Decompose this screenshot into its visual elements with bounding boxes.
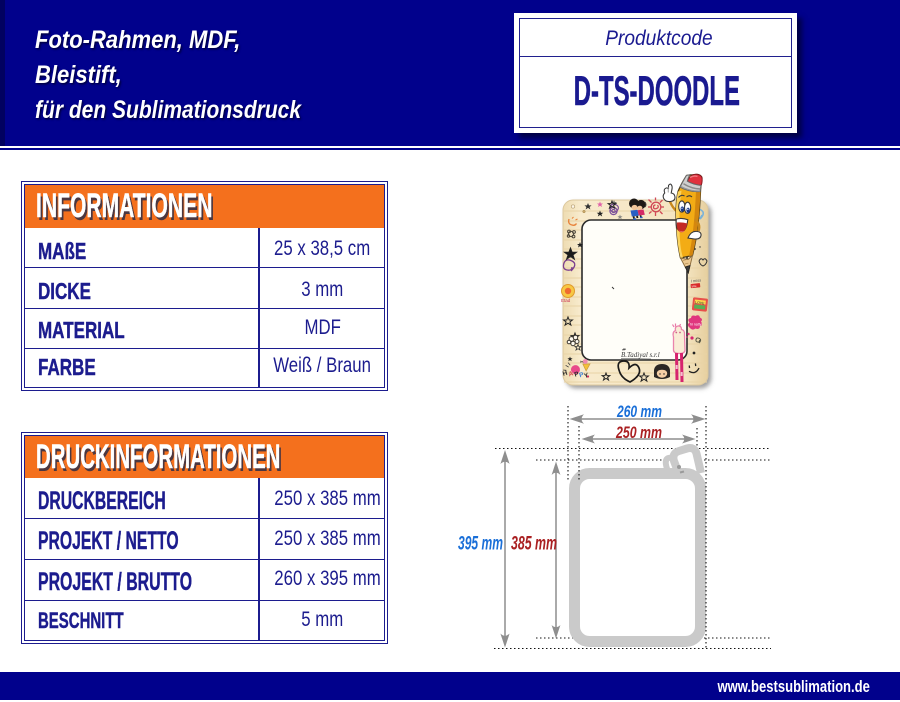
svg-text:B.Tadiyal s.r.l: B.Tadiyal s.r.l	[621, 351, 660, 359]
svg-text:Etad: Etad	[561, 298, 571, 303]
svg-text:385 mm: 385 mm	[511, 534, 557, 555]
svg-text:260 mm: 260 mm	[616, 402, 662, 421]
svg-text:250 mm: 250 mm	[615, 423, 662, 442]
svg-text:you: you	[691, 284, 697, 289]
svg-text:395 mm: 395 mm	[458, 534, 503, 555]
svg-text:hi natty: hi natty	[690, 323, 702, 327]
